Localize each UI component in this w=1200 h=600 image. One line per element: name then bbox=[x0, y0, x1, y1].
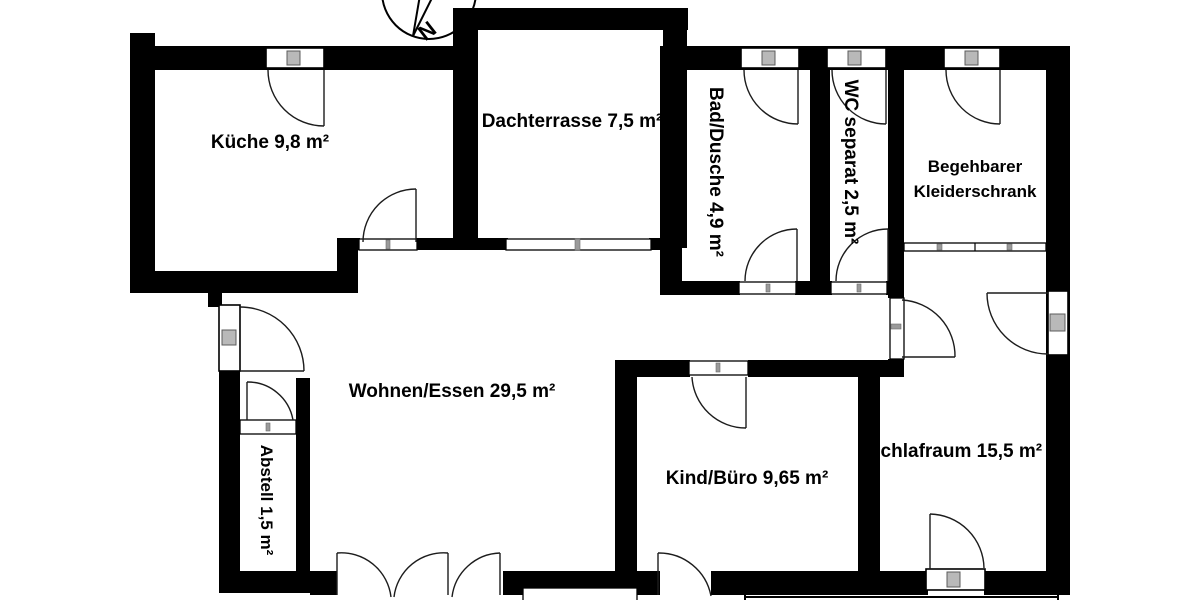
door-arc bbox=[240, 307, 304, 371]
room-label-schlafraum: Schlafraum 15,5 m² bbox=[868, 441, 1042, 462]
window bbox=[741, 48, 799, 68]
door-frame bbox=[359, 239, 417, 250]
window-handle-icon bbox=[1050, 314, 1065, 331]
wall-segment bbox=[337, 238, 360, 250]
wall-segment bbox=[795, 281, 832, 295]
door-arc bbox=[946, 70, 1000, 124]
door-swings bbox=[240, 70, 1048, 597]
door-frame bbox=[739, 282, 796, 294]
door-arc bbox=[902, 300, 955, 357]
window-handle-icon bbox=[947, 572, 960, 587]
window bbox=[266, 48, 324, 68]
room-label-bad-dusche: Bad/Dusche 4,9 m² bbox=[705, 87, 726, 257]
wall-segment bbox=[888, 46, 904, 298]
wall-segment bbox=[615, 360, 637, 595]
wall-segment bbox=[130, 46, 155, 293]
floorplan-drawing: N Küche 9,8 m² Dachterrasse 7,5 m² Bad/D… bbox=[0, 0, 1200, 600]
window bbox=[944, 48, 1000, 68]
door-handle-icon bbox=[222, 330, 236, 345]
window bbox=[506, 239, 651, 250]
wall-segment bbox=[748, 360, 904, 377]
door-arc bbox=[745, 229, 797, 281]
floorplan-canvas: N Küche 9,8 m² Dachterrasse 7,5 m² Bad/D… bbox=[0, 0, 1200, 600]
wall-segment bbox=[208, 287, 222, 307]
door-arc bbox=[658, 553, 711, 596]
door-arc bbox=[363, 189, 416, 242]
wall-segment bbox=[810, 46, 830, 295]
window bbox=[1048, 291, 1068, 355]
room-label-kind-buero: Kind/Büro 9,65 m² bbox=[666, 468, 829, 489]
door-arc bbox=[394, 553, 448, 597]
room-label-abstell: Abstell 1,5 m² bbox=[257, 445, 276, 556]
door-arc bbox=[247, 382, 293, 420]
room-label-kleiderschrank-line1: Begehbarer bbox=[928, 157, 1023, 176]
room-label-dachterrasse: Dachterrasse 7,5 m² bbox=[482, 111, 663, 132]
door-arc bbox=[268, 70, 324, 126]
wall-segment bbox=[219, 371, 240, 593]
room-label-wc-separat: WC separat 2,5 m² bbox=[840, 80, 861, 245]
window-handle-icon bbox=[848, 51, 861, 65]
door-arc bbox=[987, 293, 1048, 354]
room-label-kueche: Küche 9,8 m² bbox=[211, 132, 329, 153]
wall-segment bbox=[453, 8, 688, 30]
entrance-door bbox=[219, 305, 240, 371]
wall-segment bbox=[660, 46, 682, 295]
window-handle-icon bbox=[762, 51, 775, 65]
door-arc bbox=[930, 514, 984, 568]
sliding-door bbox=[904, 243, 1046, 251]
door-arc bbox=[452, 553, 500, 597]
wall-segment bbox=[416, 238, 508, 250]
window-handle-icon bbox=[965, 51, 978, 65]
wall-segment bbox=[130, 271, 358, 293]
compass-north-label: N bbox=[413, 16, 441, 45]
wall-segment bbox=[858, 377, 880, 573]
wall-segment bbox=[660, 281, 740, 295]
door-frame bbox=[890, 298, 904, 359]
window-handle-icon bbox=[287, 51, 300, 65]
wall-segment bbox=[296, 378, 310, 573]
window bbox=[827, 48, 886, 68]
door-frame bbox=[831, 282, 887, 294]
wall-segment bbox=[453, 8, 478, 248]
wall-segment bbox=[310, 571, 337, 595]
door-frame bbox=[240, 420, 296, 434]
door-arc bbox=[337, 553, 391, 597]
wall-segment bbox=[130, 33, 155, 47]
door-arc bbox=[744, 70, 798, 124]
wall-segment bbox=[711, 571, 928, 595]
room-label-kleiderschrank-line2: Kleiderschrank bbox=[914, 182, 1037, 201]
room-label-wohnen-essen: Wohnen/Essen 29,5 m² bbox=[349, 381, 556, 402]
window bbox=[926, 569, 985, 590]
door-arc bbox=[692, 377, 746, 428]
door-frame bbox=[689, 361, 748, 375]
wall-segment bbox=[886, 281, 904, 295]
window bbox=[523, 588, 637, 600]
